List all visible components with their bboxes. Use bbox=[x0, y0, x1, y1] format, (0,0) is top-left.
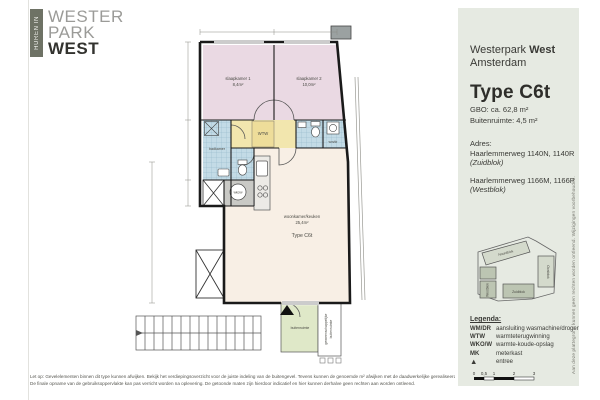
wko-label: wko/w bbox=[234, 191, 244, 195]
block-zuid-label: Zuidblok bbox=[512, 290, 525, 294]
site-plan-map: Noordblok Oostblok Westblok Zuidblok bbox=[470, 232, 560, 308]
legend-label-mk: meterkast bbox=[496, 350, 522, 358]
balcony-label: buitenruimte bbox=[291, 326, 310, 330]
toilet bbox=[238, 160, 247, 175]
bathroom-label: badkamer bbox=[209, 147, 226, 151]
info-panel: Westerpark West Amsterdam Type C6t GBO: … bbox=[458, 8, 579, 386]
legend-row: MK meterkast bbox=[470, 350, 579, 358]
side-disclaimer: Aan deze plattegrond kunnen geen rechten… bbox=[571, 176, 576, 374]
facade-edge-line bbox=[355, 77, 365, 300]
legend-row: WKO/W warmte-koude-opslag bbox=[470, 341, 579, 349]
living-type-label: Type C6t bbox=[292, 233, 313, 239]
huren-in-tab: HUREN IN bbox=[30, 9, 43, 57]
legend-row: WTW warmteterugwinning bbox=[470, 333, 579, 341]
address-2-block: (Westblok) bbox=[470, 185, 506, 194]
logo-wordmark: WESTER PARK WEST bbox=[43, 9, 124, 57]
legend-label-wmdr: aansluiting wasmachine/droger bbox=[496, 325, 579, 333]
footer-disclaimer: Let op: Gevelelementen binnen dit type k… bbox=[30, 374, 455, 387]
brand-logo: HUREN IN WESTER PARK WEST bbox=[30, 9, 124, 57]
washer-dryer bbox=[327, 122, 339, 134]
living-area: 25,4m² bbox=[295, 220, 309, 225]
kitchen-counter bbox=[254, 156, 270, 210]
scale-label-2: 2 bbox=[513, 371, 516, 376]
address-1-block: (Zuidblok) bbox=[470, 158, 503, 167]
legend-row: WM/DR aansluiting wasmachine/droger bbox=[470, 325, 579, 333]
scale-label-0: 0 bbox=[473, 371, 476, 376]
gallery-label-1: gemeenschappelijke bbox=[324, 313, 328, 344]
block-oost-label: Oostblok bbox=[546, 265, 550, 279]
block-west-upper bbox=[480, 267, 496, 279]
bedroom2-area: 10,0m² bbox=[302, 82, 316, 87]
scale-label-3: 3 bbox=[533, 371, 536, 376]
entree-triangle-icon: ▲ bbox=[470, 358, 496, 366]
project-city: Amsterdam bbox=[470, 57, 526, 69]
huren-in-label: HUREN IN bbox=[34, 16, 40, 50]
legend-key-wkow: WKO/W bbox=[470, 341, 496, 349]
legend-label-wkow: warmte-koude-opslag bbox=[496, 341, 554, 349]
scale-bar: 0 0,5 1 2 3 bbox=[470, 370, 562, 384]
gbo-value: GBO: ca. 62,8 m² bbox=[470, 105, 528, 114]
washbasin bbox=[218, 169, 229, 176]
legend: Legenda: WM/DR aansluiting wasmachine/dr… bbox=[470, 316, 579, 366]
scale-label-1: 1 bbox=[493, 371, 496, 376]
legend-label-wtw: warmteterugwinning bbox=[496, 333, 550, 341]
legend-key-wmdr: WM/DR bbox=[470, 325, 496, 333]
staircase bbox=[136, 316, 261, 350]
scale-label-05: 0,5 bbox=[481, 371, 488, 376]
elevator-shaft bbox=[196, 250, 224, 298]
corner-shaft-block bbox=[331, 26, 351, 39]
bedroom2-label: slaapkamer 2 bbox=[296, 76, 322, 81]
column-markers bbox=[320, 358, 341, 363]
washer-label: wm/dr bbox=[329, 140, 339, 144]
gallery-label-2: buitenruimte bbox=[329, 320, 333, 339]
legend-row: ▲ entree bbox=[470, 358, 579, 366]
block-oost bbox=[538, 256, 554, 287]
floorplan-sheet: HUREN IN WESTER PARK WEST bbox=[0, 0, 600, 400]
living-label: woonkamer/keuken bbox=[284, 214, 321, 219]
address-2: Haarlemmerweg 1166M, 1166P bbox=[470, 176, 575, 185]
bedroom1-area: 8,4m² bbox=[233, 82, 244, 87]
legend-title: Legenda: bbox=[470, 316, 579, 323]
legend-label-entree: entree bbox=[496, 358, 513, 366]
logo-line-3: WEST bbox=[48, 41, 124, 57]
page-edge-rule bbox=[28, 0, 29, 400]
project-name-regular: Westerpark bbox=[470, 44, 526, 56]
type-title: Type C6t bbox=[470, 82, 550, 104]
wtw-label: WTW bbox=[258, 131, 269, 136]
disclaimer-line-1: Let op: Gevelelementen binnen dit type k… bbox=[30, 374, 455, 381]
address-1: Haarlemmerweg 1140N, 1140R bbox=[470, 149, 574, 158]
address-label: Adres: bbox=[470, 139, 492, 148]
project-name-bold: West bbox=[529, 44, 555, 56]
buitenruimte-value: Buitenruimte: 4,5 m² bbox=[470, 116, 538, 125]
legend-key-wtw: WTW bbox=[470, 333, 496, 341]
service-shaft bbox=[203, 180, 224, 206]
floorplan-drawing: slaapkamer 1 8,4m² slaapkamer 2 10,0m² b… bbox=[126, 22, 466, 374]
project-name: Westerpark West bbox=[470, 44, 555, 56]
bedroom1-label: slaapkamer 1 bbox=[225, 76, 251, 81]
block-west-label: Westblok bbox=[486, 283, 490, 297]
disclaimer-line-2: De finale opname van de gebruiksoppervla… bbox=[30, 381, 455, 388]
